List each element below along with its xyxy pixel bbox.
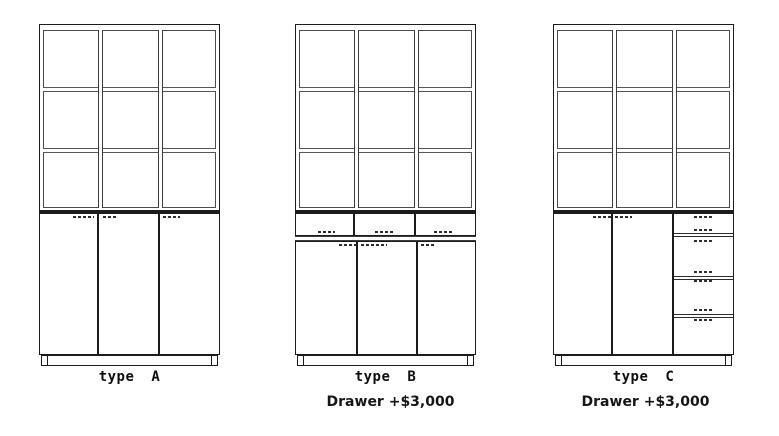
door-handle-mark	[593, 216, 612, 218]
door-handle-mark	[73, 216, 94, 218]
shelf-line	[43, 148, 216, 153]
furniture-drawing-canvas: type A type B type C Drawer +$3,000 Draw…	[0, 0, 779, 436]
base-foot-line	[211, 356, 212, 365]
drawer-divider	[674, 314, 733, 318]
base-foot-line	[467, 356, 468, 365]
cabinet-a-base	[41, 355, 218, 366]
shelf-line	[557, 87, 730, 92]
cabinet-b-type-label: type B	[295, 369, 476, 385]
shelf-line	[299, 87, 472, 92]
drawer-handle-mark	[694, 309, 714, 311]
cabinet-a-shelf-unit	[39, 24, 220, 212]
drawer-handle-mark	[694, 280, 714, 282]
cabinet-a-type-label: type A	[39, 369, 220, 385]
cabinet-type-b-diagram	[295, 24, 476, 367]
cabinet-type-a-diagram	[39, 24, 220, 367]
drawer-handle-mark	[694, 216, 714, 218]
shelf-line	[299, 148, 472, 153]
shelf-unit-inner-frame	[43, 30, 216, 208]
cabinet-c-drawer-price-note: Drawer +$3,000	[555, 394, 736, 410]
shelf-divider	[672, 30, 677, 208]
cabinet-a-door-unit	[39, 212, 220, 355]
drawer-divider	[353, 214, 355, 235]
door-divider	[611, 214, 613, 354]
door-handle-mark	[339, 244, 357, 246]
drawer-handle-mark	[694, 319, 714, 321]
drawer-divider	[414, 214, 416, 235]
drawer-handle-mark	[375, 231, 393, 233]
door-divider	[97, 214, 99, 354]
cabinet-c-drawer-stack	[674, 214, 733, 354]
cabinet-b-base	[297, 355, 474, 366]
base-foot-line	[725, 356, 726, 365]
door-divider	[416, 242, 418, 354]
cabinet-b-door-unit	[295, 241, 476, 355]
drawer-handle-mark	[434, 231, 453, 233]
cabinet-c-door-and-drawer-unit	[553, 212, 734, 355]
shelf-unit-inner-frame	[557, 30, 730, 208]
door-handle-mark	[163, 216, 180, 218]
cabinet-b-drawer-price-note: Drawer +$3,000	[300, 394, 481, 410]
cabinet-c-base	[555, 355, 732, 366]
base-foot-line	[303, 356, 304, 365]
base-foot-line	[47, 356, 48, 365]
cabinet-c-type-label: type C	[553, 369, 734, 385]
shelf-unit-inner-frame	[299, 30, 472, 208]
drawer-handle-mark	[694, 240, 714, 242]
cabinet-b-drawer-row	[295, 212, 476, 236]
door-divider	[158, 214, 160, 354]
door-divider	[356, 242, 358, 354]
door-handle-mark	[103, 216, 117, 218]
cabinet-c-shelf-unit	[553, 24, 734, 212]
door-handle-mark	[615, 216, 632, 218]
shelf-line	[557, 148, 730, 153]
drawer-divider	[674, 233, 733, 237]
drawer-handle-mark	[318, 231, 335, 233]
door-handle-mark	[361, 244, 387, 246]
cabinet-type-c-diagram	[553, 24, 734, 367]
cabinet-b-shelf-unit	[295, 24, 476, 212]
shelf-divider	[98, 30, 103, 208]
door-handle-mark	[421, 244, 435, 246]
shelf-line	[43, 87, 216, 92]
drawer-handle-mark	[694, 271, 714, 273]
drawer-handle-mark	[694, 229, 714, 231]
shelf-divider	[354, 30, 359, 208]
shelf-divider	[414, 30, 419, 208]
shelf-divider	[612, 30, 617, 208]
shelf-divider	[158, 30, 163, 208]
base-foot-line	[561, 356, 562, 365]
